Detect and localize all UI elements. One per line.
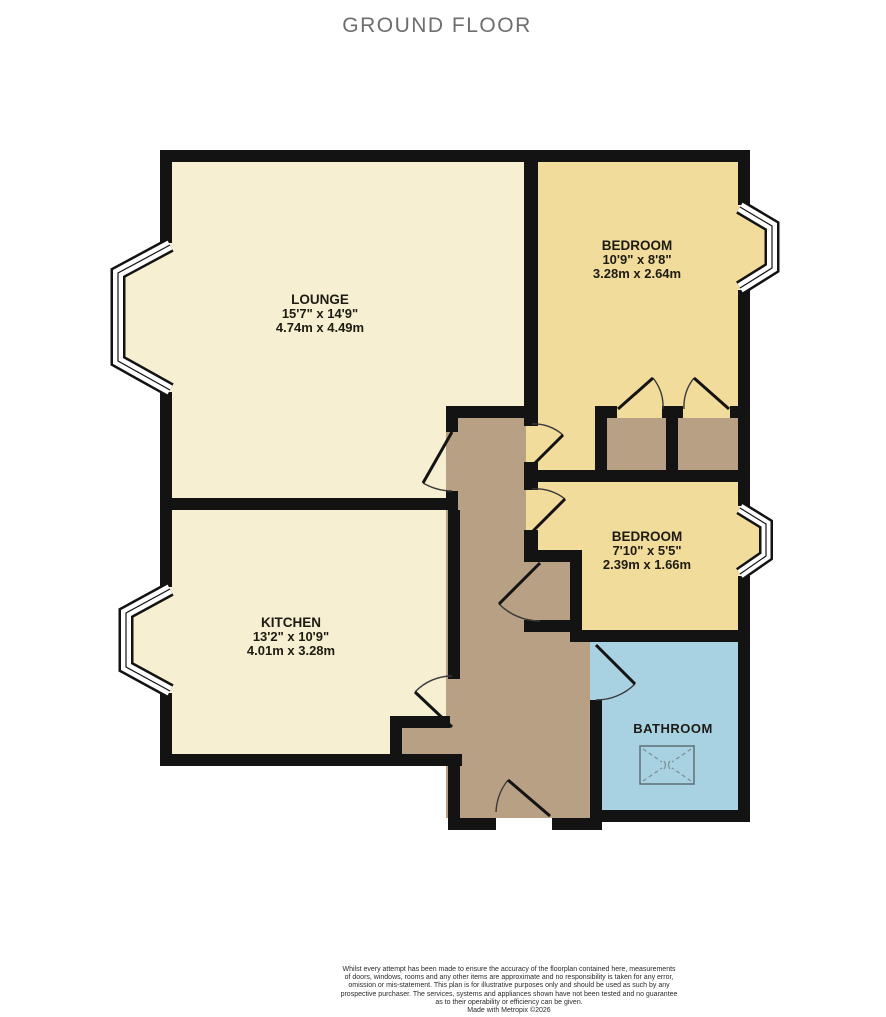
lounge-label: LOUNGE [291,292,349,307]
disclaimer-line: omission or mis-statement. This plan is … [341,982,678,990]
disclaimer-line: Whilst every attempt has been made to en… [341,966,678,974]
kitchen-label: KITCHEN [261,615,321,630]
kitchen-dims-imperial: 13'2" x 10'9" [253,629,329,644]
hallway-lower-floor [458,632,590,818]
bedroom2-label: BEDROOM [612,529,683,544]
bedroom2-dims-metric: 2.39m x 1.66m [603,557,691,572]
bedroom1-dims-imperial: 10'9" x 8'8" [602,252,671,267]
closet-a-floor [607,418,666,470]
room-bedroom1-floor [538,162,738,418]
bathroom-label: BATHROOM [633,721,713,736]
bedroom2-dims-imperial: 7'10" x 5'5" [612,543,681,558]
closet-b-floor [678,418,738,470]
bedroom1-dims-metric: 3.28m x 2.64m [593,266,681,281]
lounge-dims-metric: 4.74m x 4.49m [276,320,364,335]
disclaimer: Whilst every attempt has been made to en… [341,966,678,1015]
disclaimer-line: as to their operability or efficiency ca… [341,999,678,1007]
disclaimer-line: of doors, windows, rooms and any other i… [341,974,678,982]
disclaimer-line: prospective purchaser. The services, sys… [341,991,678,999]
kitchen-dims-metric: 4.01m x 3.28m [247,643,335,658]
disclaimer-credit: Made with Metropix ©2026 [341,1007,678,1015]
floorplan-canvas: LOUNGE 15'7" x 14'9" 4.74m x 4.49m BEDRO… [0,0,886,1017]
lounge-dims-imperial: 15'7" x 14'9" [282,306,358,321]
bedroom1-label: BEDROOM [602,238,673,253]
